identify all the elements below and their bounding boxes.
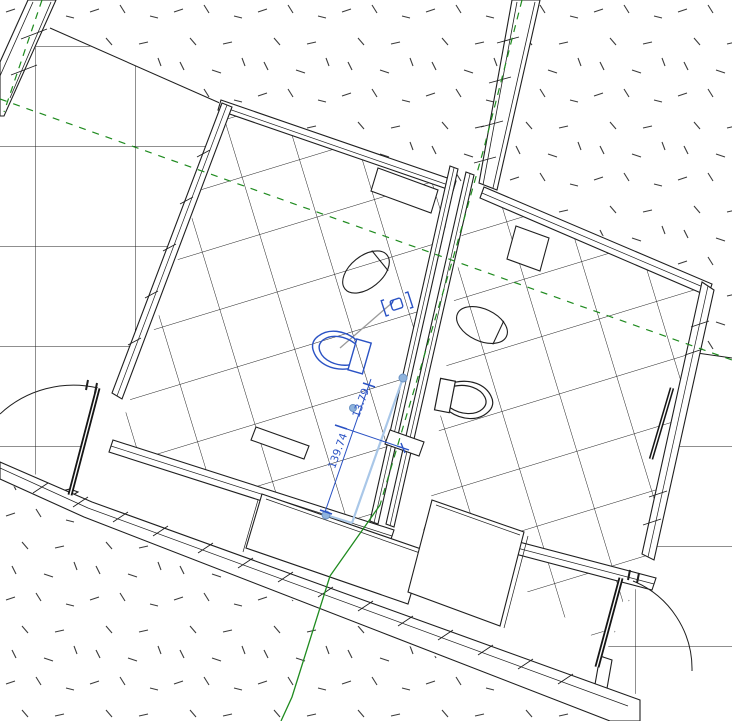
plan-canvas[interactable]: 13.79 139.74: [0, 0, 732, 721]
drawing-area[interactable]: 13.79 139.74: [0, 0, 732, 721]
drag-handle-top[interactable]: [399, 374, 407, 382]
